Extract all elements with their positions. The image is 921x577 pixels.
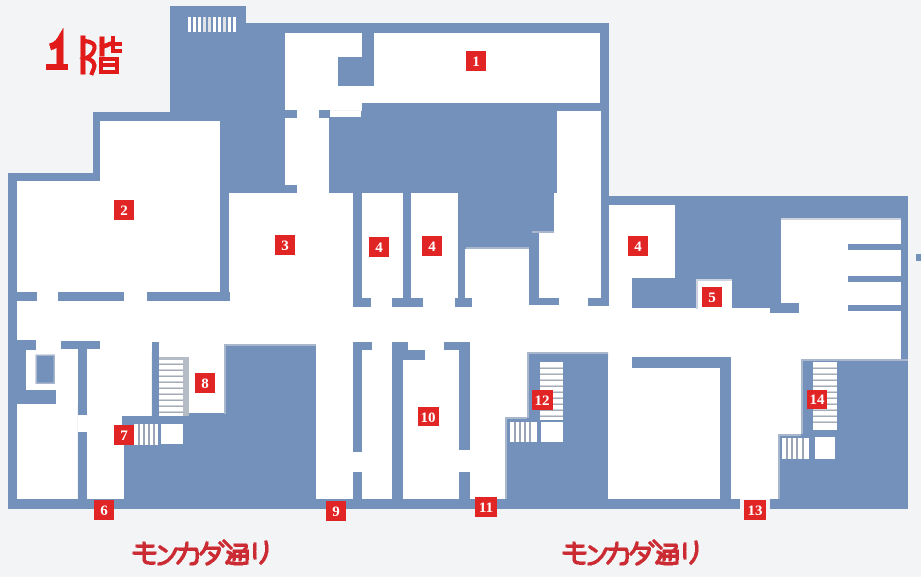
svg-text:13: 13 bbox=[748, 503, 763, 519]
svg-text:4: 4 bbox=[375, 240, 383, 256]
svg-text:3: 3 bbox=[281, 238, 289, 254]
svg-text:1: 1 bbox=[472, 54, 480, 70]
svg-text:4: 4 bbox=[634, 239, 642, 255]
svg-text:2: 2 bbox=[120, 203, 128, 219]
svg-text:9: 9 bbox=[332, 504, 340, 520]
svg-text:7: 7 bbox=[120, 428, 128, 444]
svg-text:4: 4 bbox=[428, 239, 436, 255]
svg-text:5: 5 bbox=[708, 290, 716, 306]
svg-text:8: 8 bbox=[201, 376, 209, 392]
svg-text:11: 11 bbox=[479, 500, 493, 516]
svg-text:6: 6 bbox=[100, 503, 108, 519]
svg-text:12: 12 bbox=[535, 393, 550, 409]
svg-text:10: 10 bbox=[421, 410, 436, 426]
svg-text:14: 14 bbox=[810, 392, 826, 408]
